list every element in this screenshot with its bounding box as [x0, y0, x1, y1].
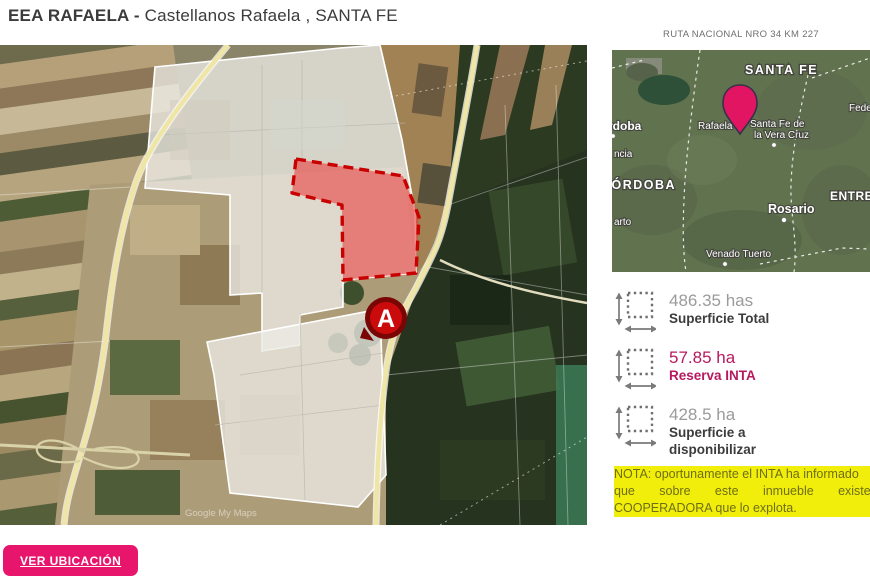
stat-superficie-total: 486.35 has Superficie Total [614, 291, 870, 335]
label-city-santa-fe-2: la Vera Cruz [754, 130, 809, 141]
area-dimensions-icon [614, 405, 656, 449]
label-fragment-ncia: ncia [614, 149, 633, 160]
note-line-1: NOTA: oportunamente el INTA ha informado [614, 466, 870, 483]
route-caption: RUTA NACIONAL NRO 34 KM 227 [612, 29, 870, 40]
satellite-map-canvas: A Google My Maps [0, 45, 587, 525]
stat-label: Superficie a disponibilizar [669, 425, 789, 459]
label-city-rosario: Rosario [768, 202, 815, 216]
satellite-map[interactable]: A Google My Maps [0, 45, 587, 525]
stat-value: 428.5 ha [669, 406, 799, 425]
page-title-name: EEA RAFAELA - [8, 6, 140, 25]
label-province-cordoba: CÓRDOBA [612, 177, 676, 192]
label-city-venado-tuerto: Venado Tuerto [706, 249, 771, 260]
area-dimensions-icon [614, 291, 656, 335]
note-line-2: que sobre este inmueble existe una [614, 483, 870, 500]
stat-value: 57.85 ha [669, 349, 799, 368]
label-province-entre-rios: ENTRE RÍOS [830, 188, 870, 203]
label-city-santa-fe-1: Santa Fe de [750, 119, 805, 130]
map-watermark: Google My Maps [185, 508, 257, 519]
label-fragment-arto: arto [614, 217, 632, 228]
label-city-cordoba: Córdoba [612, 119, 642, 133]
label-city-rafaela: Rafaela [698, 121, 733, 132]
map-marker-a-label: A [377, 305, 395, 333]
stat-value: 486.35 has [669, 292, 799, 311]
stat-reserva-inta: 57.85 ha Reserva INTA [614, 348, 870, 392]
stat-label: Superficie Total [669, 311, 789, 328]
stat-label: Reserva INTA [669, 368, 789, 385]
surface-stats: 486.35 has Superficie Total 57.85 ha Res… [614, 291, 870, 471]
inta-note: NOTA: oportunamente el INTA ha informado… [614, 466, 870, 517]
page-title-location: Castellanos Rafaela , SANTA FE [140, 6, 398, 25]
overview-map-canvas: SANTA FE Córdoba Rafaela Santa Fe de la … [612, 50, 870, 272]
label-province-santa-fe: SANTA FE [745, 63, 818, 77]
note-line-3: COOPERADORA que lo explota. [614, 500, 870, 517]
area-dimensions-icon [614, 348, 656, 392]
page-title: EEA RAFAELA - Castellanos Rafaela , SANT… [8, 6, 398, 26]
overview-map[interactable]: SANTA FE Córdoba Rafaela Santa Fe de la … [612, 50, 870, 272]
label-city-federacion: Federación [849, 103, 870, 114]
ver-ubicacion-button[interactable]: VER UBICACIÓN [3, 545, 138, 576]
stat-superficie-disponibilizar: 428.5 ha Superficie a disponibilizar [614, 405, 870, 458]
